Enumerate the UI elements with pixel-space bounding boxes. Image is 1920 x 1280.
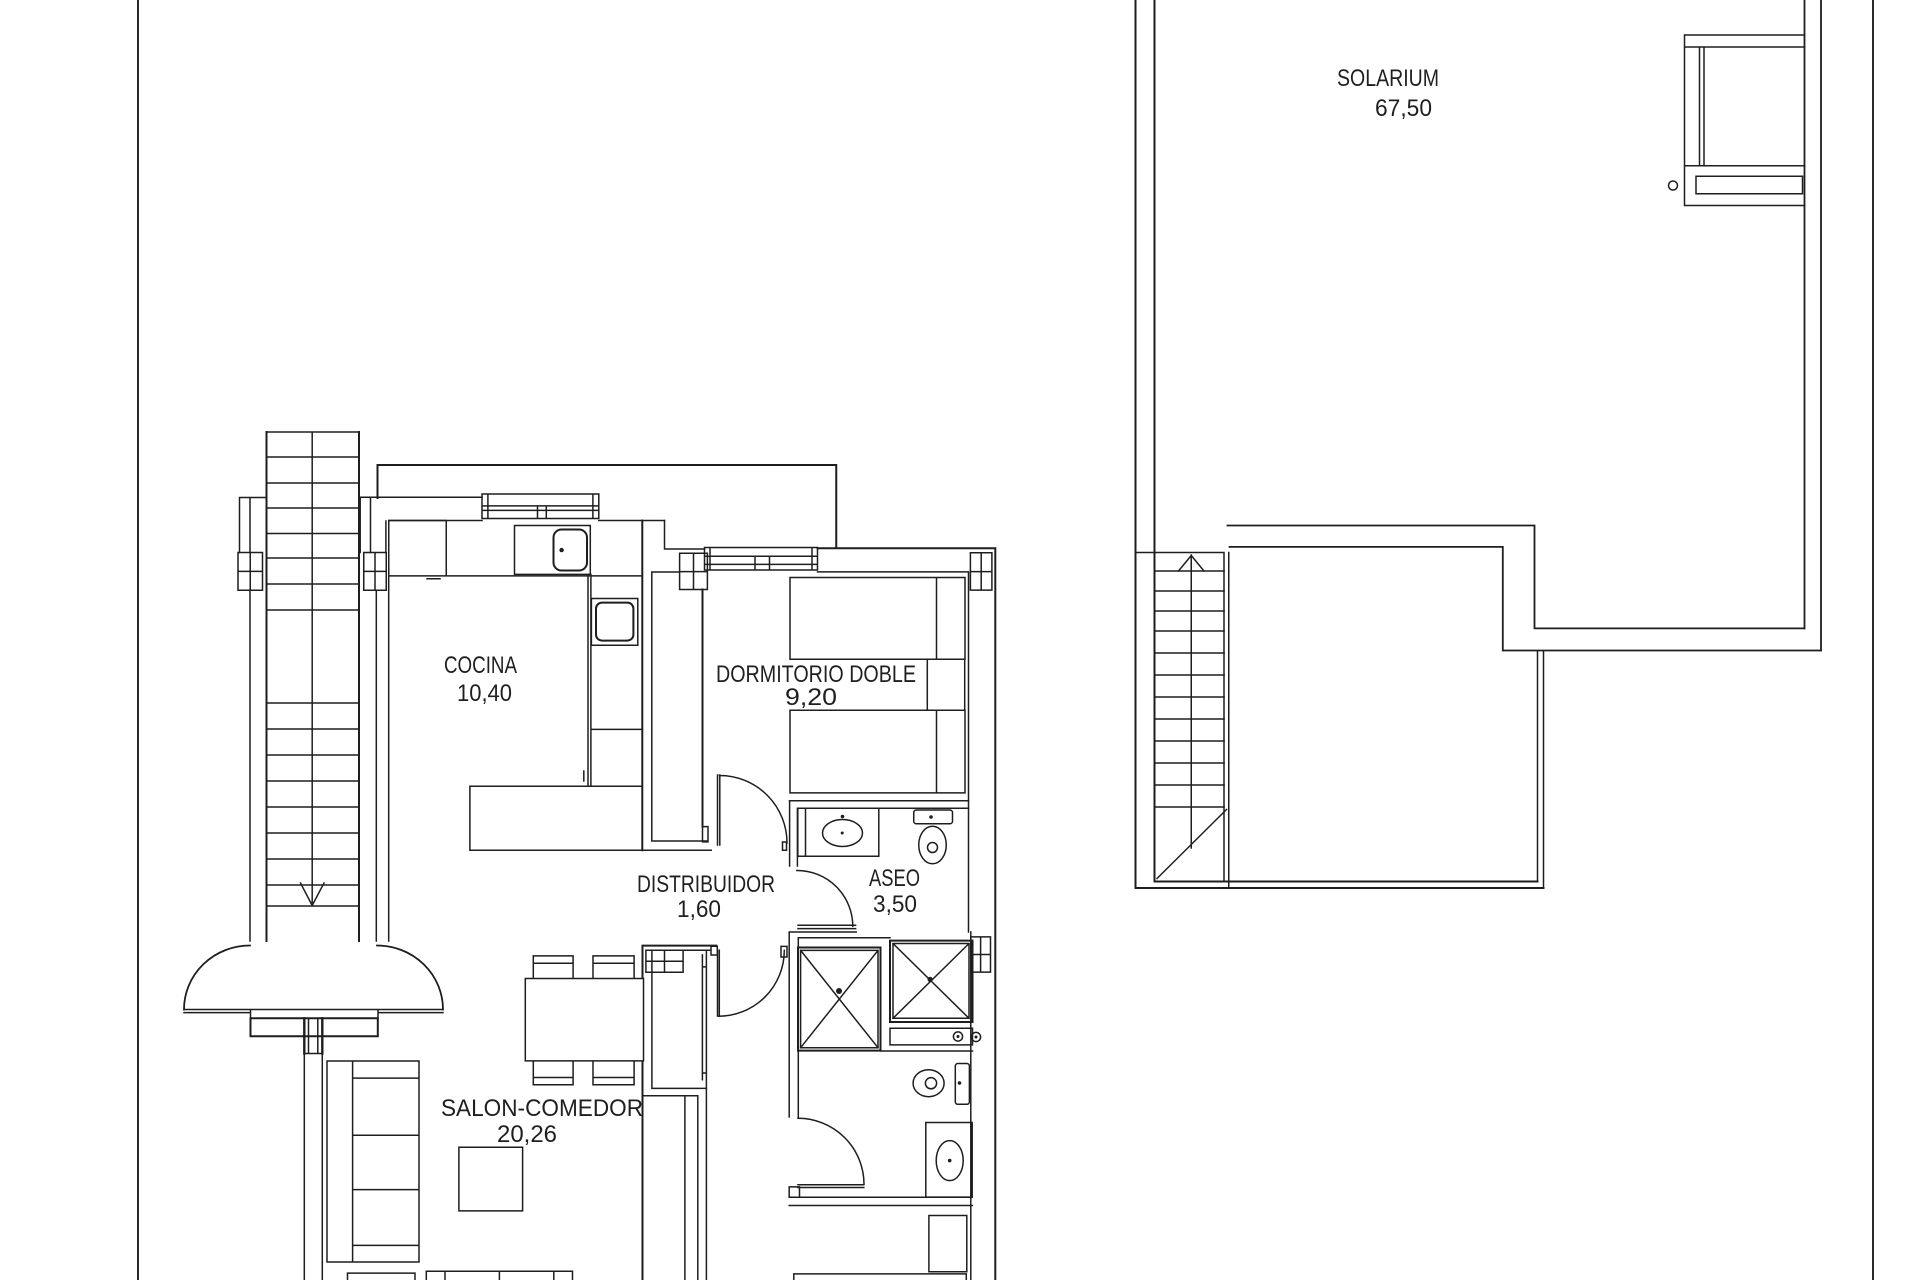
svg-text:20,26: 20,26 <box>497 1121 557 1148</box>
svg-text:SALON-COMEDOR: SALON-COMEDOR <box>441 1095 643 1122</box>
svg-text:67,50: 67,50 <box>1375 95 1432 122</box>
svg-text:DISTRIBUIDOR: DISTRIBUIDOR <box>637 871 775 898</box>
svg-text:COCINA: COCINA <box>444 652 517 679</box>
svg-text:10,40: 10,40 <box>457 680 512 707</box>
svg-text:ASEO: ASEO <box>869 865 920 892</box>
svg-text:SOLARIUM: SOLARIUM <box>1337 65 1439 92</box>
svg-text:9,20: 9,20 <box>785 684 837 711</box>
svg-text:3,50: 3,50 <box>873 891 917 918</box>
svg-text:1,60: 1,60 <box>677 896 721 923</box>
